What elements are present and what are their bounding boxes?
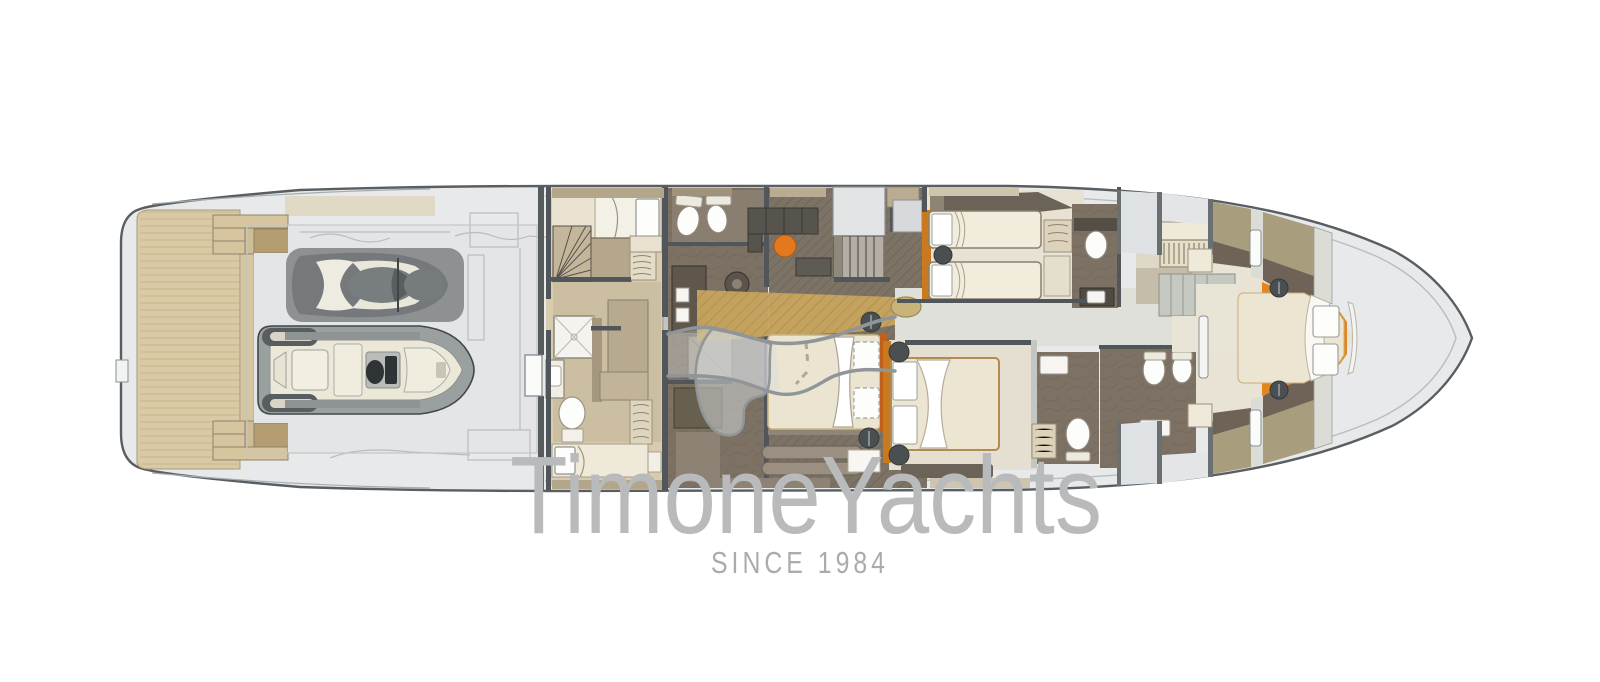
svg-text:SINCE 1984: SINCE 1984 bbox=[711, 545, 889, 580]
svg-text:TimoneYachts: TimoneYachts bbox=[510, 434, 1102, 557]
